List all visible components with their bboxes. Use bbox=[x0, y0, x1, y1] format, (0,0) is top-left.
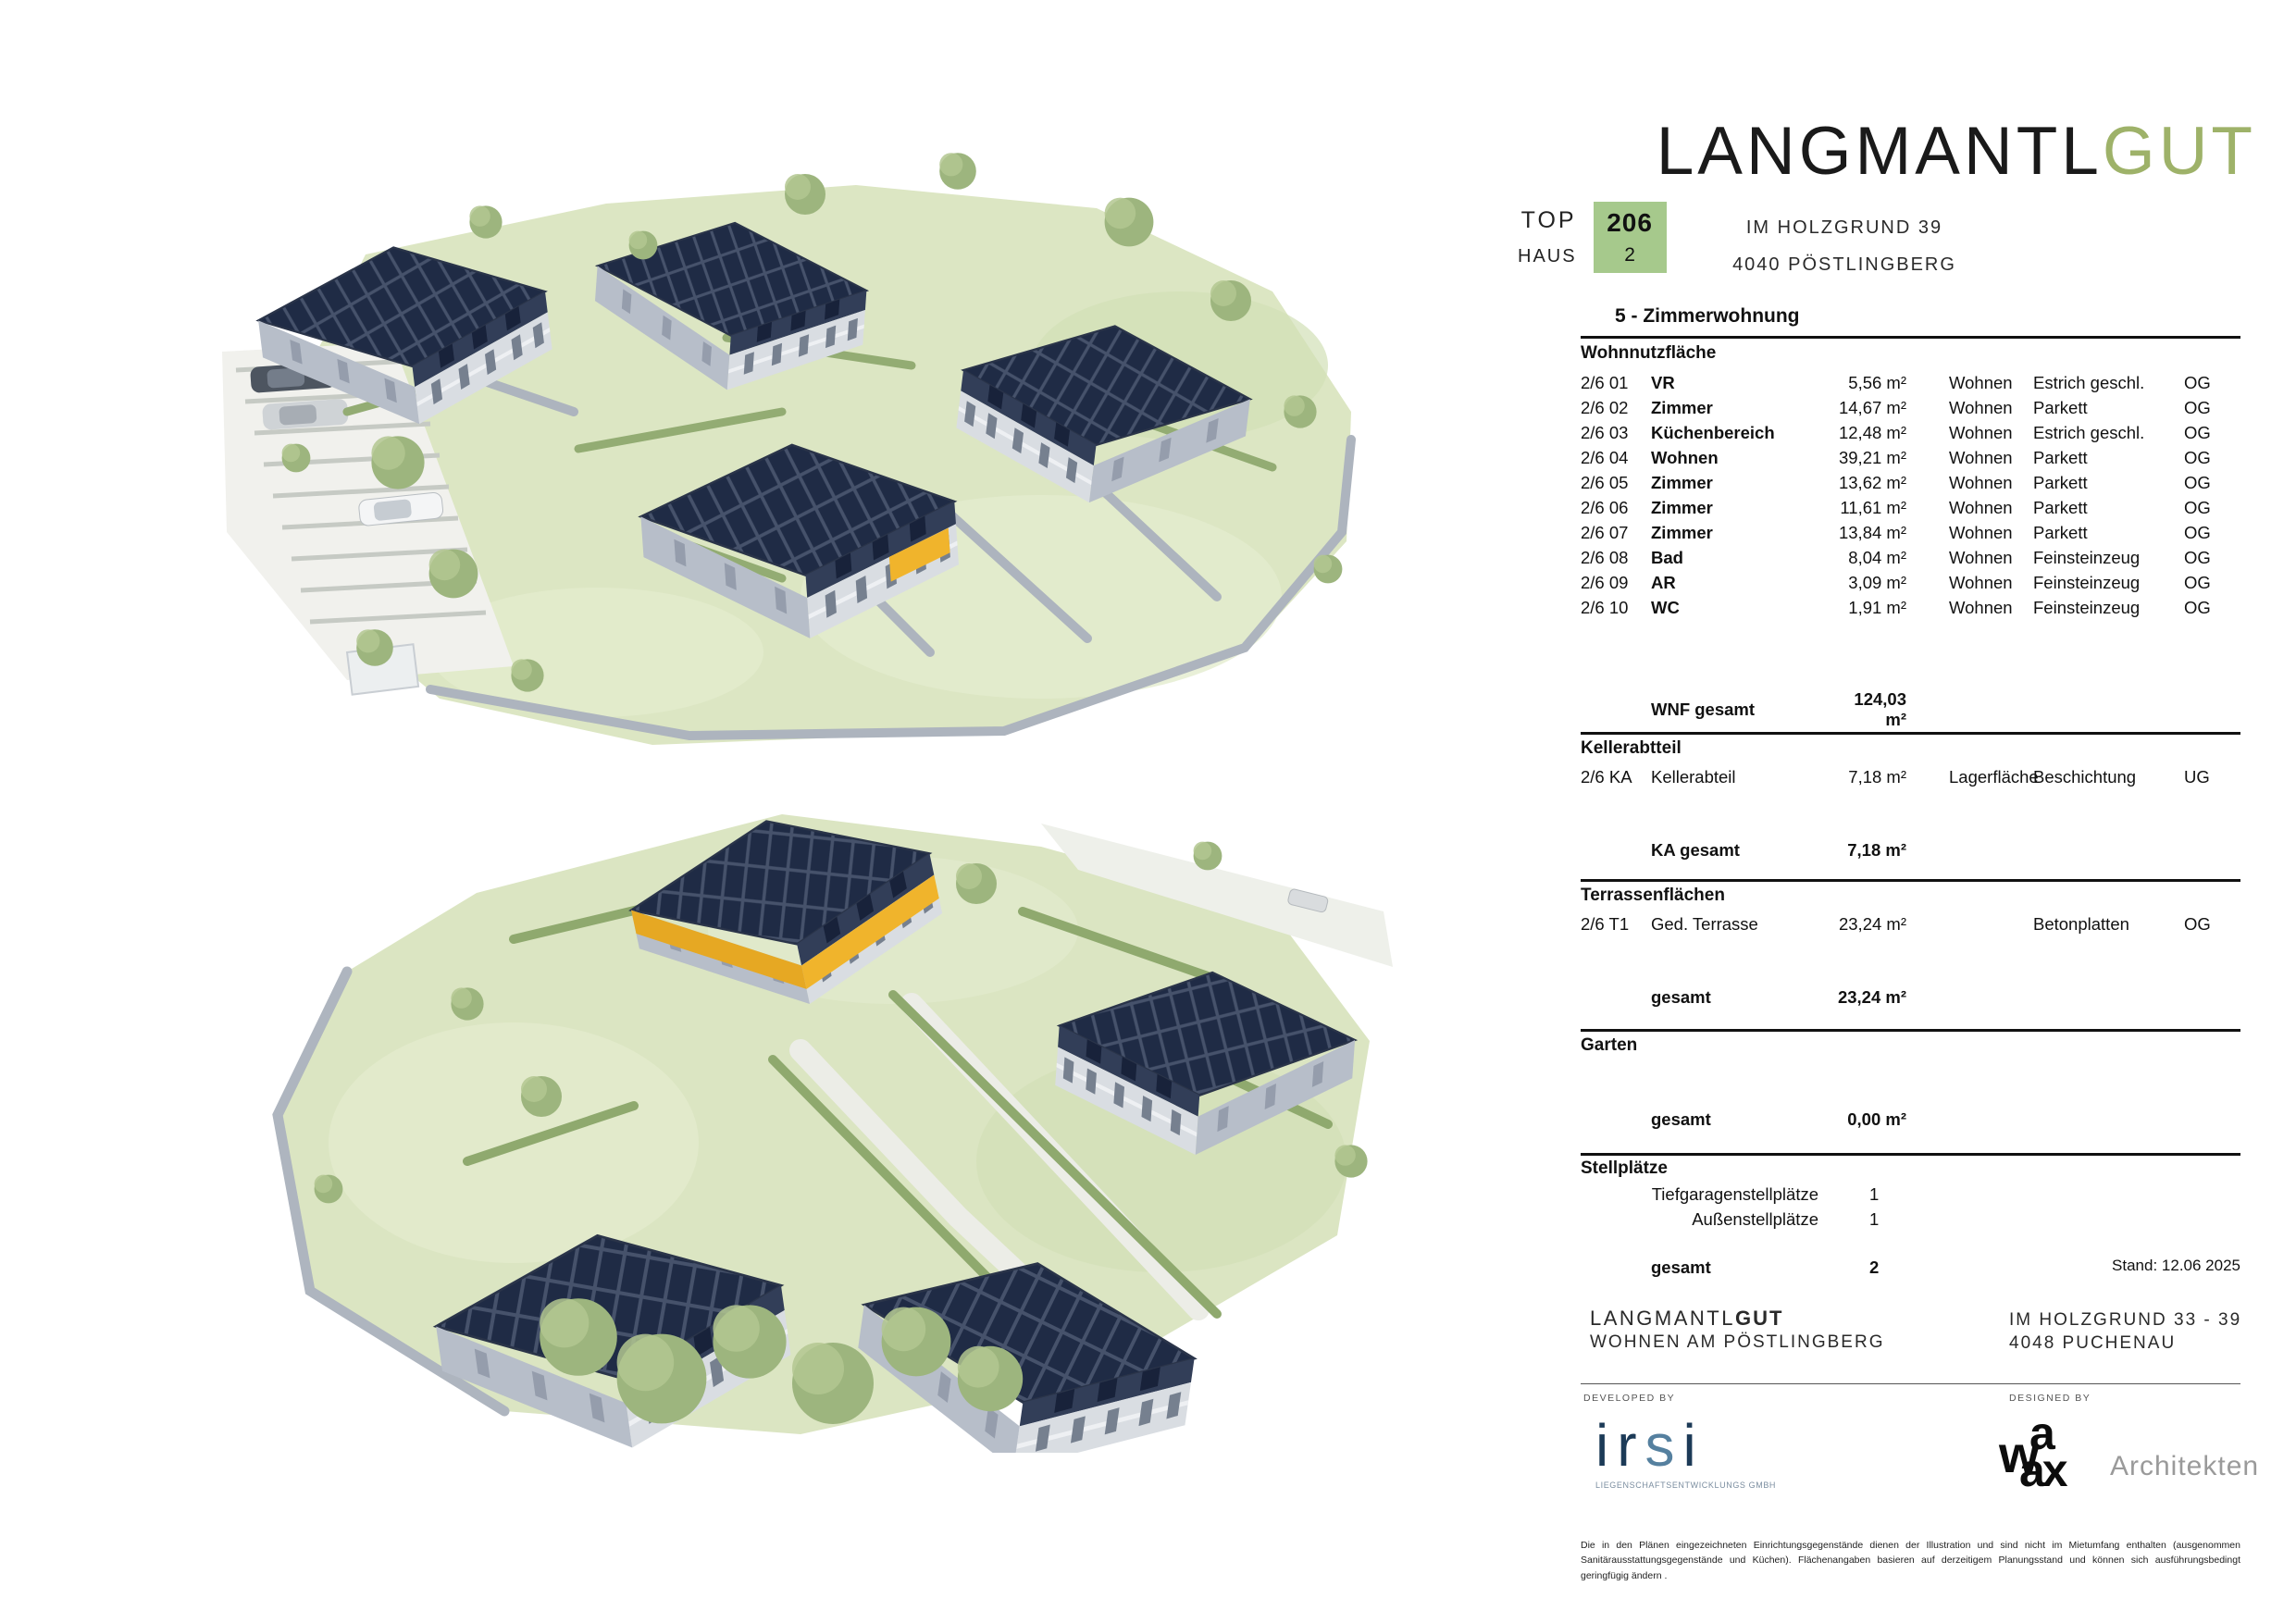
footer-brand-bold: GUT bbox=[1735, 1307, 1783, 1330]
wnf-total-label: WNF gesamt bbox=[1651, 700, 1836, 720]
designed-by-label: DESIGNED BY bbox=[2009, 1393, 2091, 1404]
garten-total-row: gesamt 0,00 m² bbox=[1581, 1107, 2240, 1132]
col-floor: OG bbox=[2184, 573, 2240, 593]
stellplatz-label: Außenstellplätze bbox=[1581, 1209, 1818, 1230]
haus-label: HAUS bbox=[1518, 246, 1577, 267]
col-zone: Wohnen bbox=[1906, 548, 2033, 568]
col-name: Zimmer bbox=[1651, 398, 1836, 418]
col-area: 1,91 m² bbox=[1836, 598, 1906, 618]
col-nr: 2/6 01 bbox=[1581, 373, 1651, 393]
wnf-total-row: WNF gesamt 124,03 m² bbox=[1581, 689, 2240, 714]
col-zone: Wohnen bbox=[1906, 573, 2033, 593]
ka-total-value: 7,18 m² bbox=[1836, 840, 1906, 861]
info-panel: LANGMANTLGUT TOP HAUS 206 2 IM HOLZGRUND… bbox=[1581, 120, 2258, 1601]
col-finish: Estrich geschl. bbox=[2033, 423, 2184, 443]
col-area: 3,09 m² bbox=[1836, 573, 1906, 593]
irsi-sub-label: LIEGENSCHAFTSENTWICKLUNGS GMBH bbox=[1595, 1481, 1799, 1490]
table-row: 2/6 02 Zimmer 14,67 m² Wohnen Parkett OG bbox=[1581, 395, 2240, 420]
col-zone: Wohnen bbox=[1906, 498, 2033, 518]
footer-brand-normal: LANGMANTL bbox=[1590, 1307, 1735, 1330]
project-address: IM HOLZGRUND 39 4040 PÖSTLINGBERG bbox=[1692, 209, 1997, 283]
stellplatz-label: Tiefgaragenstellplätze bbox=[1581, 1184, 1818, 1205]
section-header-terrassen: Terrassenflächen bbox=[1581, 886, 1725, 906]
address-line-1: IM HOLZGRUND 39 bbox=[1692, 209, 1997, 246]
col-nr: 2/6 07 bbox=[1581, 523, 1651, 543]
col-nr: 2/6 02 bbox=[1581, 398, 1651, 418]
col-zone: Wohnen bbox=[1906, 598, 2033, 618]
col-finish: Beschichtung bbox=[2033, 767, 2184, 787]
table-row: 2/6 03 Küchenbereich 12,48 m² Wohnen Est… bbox=[1581, 420, 2240, 445]
site-rendering-bottom bbox=[190, 773, 1402, 1453]
col-floor: OG bbox=[2184, 473, 2240, 493]
col-name: Küchenbereich bbox=[1651, 423, 1836, 443]
disclaimer-text: Die in den Plänen eingezeichneten Einric… bbox=[1581, 1538, 2240, 1583]
col-nr: 2/6 T1 bbox=[1581, 914, 1651, 935]
col-zone: Wohnen bbox=[1906, 473, 2033, 493]
section-header-stellplaetze: Stellplätze bbox=[1581, 1158, 1668, 1179]
col-finish: Feinsteinzeug bbox=[2033, 548, 2184, 568]
table-row: 2/6 01 VR 5,56 m² Wohnen Estrich geschl.… bbox=[1581, 370, 2240, 395]
waax-ax: ax bbox=[2019, 1447, 2066, 1493]
col-nr: 2/6 KA bbox=[1581, 767, 1651, 787]
brand-logo-green: GUT bbox=[2103, 114, 2256, 189]
section-header-garten: Garten bbox=[1581, 1035, 1637, 1056]
datasheet-page: LANGMANTLGUT TOP HAUS 206 2 IM HOLZGRUND… bbox=[0, 0, 2296, 1623]
col-name: WC bbox=[1651, 598, 1836, 618]
col-name: Zimmer bbox=[1651, 473, 1836, 493]
col-name: Kellerabteil bbox=[1651, 767, 1836, 787]
waax-logo: w a ax Architekten bbox=[1999, 1414, 2240, 1506]
table-row: 2/6 04 Wohnen 39,21 m² Wohnen Parkett OG bbox=[1581, 445, 2240, 470]
brand-logo: LANGMANTLGUT bbox=[1657, 113, 2256, 190]
unit-number-box: 206 2 bbox=[1594, 202, 1667, 273]
footer-brand-sub: WOHNEN AM PÖSTLINGBERG bbox=[1590, 1331, 1884, 1355]
col-nr: 2/6 08 bbox=[1581, 548, 1651, 568]
col-floor: OG bbox=[2184, 498, 2240, 518]
address-line-2: 4040 PÖSTLINGBERG bbox=[1692, 246, 1997, 283]
col-floor: OG bbox=[2184, 448, 2240, 468]
section-header-wohnnutzflaeche: Wohnnutzfläche bbox=[1581, 343, 1716, 364]
wohnnutzflaeche-rows: 2/6 01 VR 5,56 m² Wohnen Estrich geschl.… bbox=[1581, 370, 2240, 620]
ka-total-row: KA gesamt 7,18 m² bbox=[1581, 837, 2240, 862]
site-rendering-top bbox=[208, 134, 1393, 754]
col-floor: OG bbox=[2184, 398, 2240, 418]
footer-address-line-2: 4048 PUCHENAU bbox=[2009, 1332, 2241, 1355]
col-zone: Lagerfläche bbox=[1906, 767, 2033, 787]
terrassen-total-label: gesamt bbox=[1651, 987, 1836, 1008]
col-finish: Parkett bbox=[2033, 398, 2184, 418]
ka-total-label: KA gesamt bbox=[1651, 840, 1836, 861]
waax-architekten-label: Architekten bbox=[2110, 1453, 2259, 1481]
stellplatz-value: 1 bbox=[1818, 1184, 2240, 1205]
footer-separator-line bbox=[1581, 1383, 2240, 1384]
footer-brand: LANGMANTLGUT WOHNEN AM PÖSTLINGBERG bbox=[1590, 1307, 1884, 1355]
col-name: Zimmer bbox=[1651, 523, 1836, 543]
unit-identifier: TOP HAUS 206 2 bbox=[1518, 202, 1667, 273]
top-label: TOP bbox=[1521, 207, 1577, 234]
col-area: 13,62 m² bbox=[1836, 473, 1906, 493]
table-row: 2/6 T1 Ged. Terrasse 23,24 m² Betonplatt… bbox=[1581, 911, 2240, 936]
top-value: 206 bbox=[1607, 208, 1653, 238]
col-name: Ged. Terrasse bbox=[1651, 914, 1836, 935]
separator-line bbox=[1581, 1153, 2240, 1156]
col-floor: OG bbox=[2184, 598, 2240, 618]
col-area: 5,56 m² bbox=[1836, 373, 1906, 393]
col-floor: OG bbox=[2184, 548, 2240, 568]
col-floor: OG bbox=[2184, 373, 2240, 393]
col-name: VR bbox=[1651, 373, 1836, 393]
developed-by-label: DEVELOPED BY bbox=[1583, 1393, 1675, 1404]
col-area: 11,61 m² bbox=[1836, 498, 1906, 518]
table-row: 2/6 KA Kellerabteil 7,18 m² Lagerfläche … bbox=[1581, 764, 2240, 789]
col-name: Wohnen bbox=[1651, 448, 1836, 468]
col-area: 39,21 m² bbox=[1836, 448, 1906, 468]
col-floor: UG bbox=[2184, 767, 2240, 787]
footer-address-line-1: IM HOLZGRUND 33 - 39 bbox=[2009, 1308, 2241, 1332]
garten-total-value: 0,00 m² bbox=[1836, 1109, 1906, 1130]
haus-value: 2 bbox=[1624, 244, 1635, 266]
separator-line bbox=[1581, 879, 2240, 882]
col-finish: Parkett bbox=[2033, 498, 2184, 518]
section-header-kellerabteil: Kellerabtteil bbox=[1581, 738, 1682, 759]
col-name: AR bbox=[1651, 573, 1836, 593]
stellplaetze-rows: Tiefgaragenstellplätze 1 Außenstellplätz… bbox=[1581, 1182, 2240, 1232]
irsi-logo: irsi LIEGENSCHAFTSENTWICKLUNGS GMBH bbox=[1595, 1416, 1799, 1490]
col-nr: 2/6 04 bbox=[1581, 448, 1651, 468]
col-finish: Betonplatten bbox=[2033, 914, 2184, 935]
separator-line bbox=[1581, 732, 2240, 735]
col-nr: 2/6 10 bbox=[1581, 598, 1651, 618]
col-area: 14,67 m² bbox=[1836, 398, 1906, 418]
stellplatz-value: 1 bbox=[1818, 1209, 2240, 1230]
col-finish: Estrich geschl. bbox=[2033, 373, 2184, 393]
wnf-total-value: 124,03 m² bbox=[1836, 689, 1906, 730]
brand-logo-black: LANGMANTL bbox=[1657, 114, 2103, 189]
table-row: 2/6 05 Zimmer 13,62 m² Wohnen Parkett OG bbox=[1581, 470, 2240, 495]
stellplaetze-total-row: gesamt 2 Stand: 12.06 2025 bbox=[1581, 1255, 2240, 1280]
col-finish: Parkett bbox=[2033, 523, 2184, 543]
col-area: 13,84 m² bbox=[1836, 523, 1906, 543]
terrassen-total-row: gesamt 23,24 m² bbox=[1581, 985, 2240, 1010]
separator-line bbox=[1581, 1029, 2240, 1032]
apartment-type-title: 5 - Zimmerwohnung bbox=[1615, 305, 1800, 328]
col-name: Zimmer bbox=[1651, 498, 1836, 518]
table-row: 2/6 10 WC 1,91 m² Wohnen Feinsteinzeug O… bbox=[1581, 595, 2240, 620]
stellplaetze-total-label: gesamt bbox=[1581, 1258, 1818, 1278]
col-finish: Feinsteinzeug bbox=[2033, 573, 2184, 593]
kellerabteil-rows: 2/6 KA Kellerabteil 7,18 m² Lagerfläche … bbox=[1581, 764, 2240, 789]
col-zone: Wohnen bbox=[1906, 373, 2033, 393]
separator-line bbox=[1581, 336, 2240, 339]
col-nr: 2/6 06 bbox=[1581, 498, 1651, 518]
table-row: 2/6 08 Bad 8,04 m² Wohnen Feinsteinzeug … bbox=[1581, 545, 2240, 570]
stand-date: Stand: 12.06 2025 bbox=[2112, 1257, 2240, 1275]
footer-address: IM HOLZGRUND 33 - 39 4048 PUCHENAU bbox=[2009, 1308, 2241, 1355]
col-nr: 2/6 05 bbox=[1581, 473, 1651, 493]
col-nr: 2/6 09 bbox=[1581, 573, 1651, 593]
col-floor: OG bbox=[2184, 423, 2240, 443]
col-area: 12,48 m² bbox=[1836, 423, 1906, 443]
stellplatz-row: Außenstellplätze 1 bbox=[1581, 1207, 2240, 1232]
col-nr: 2/6 03 bbox=[1581, 423, 1651, 443]
table-row: 2/6 09 AR 3,09 m² Wohnen Feinsteinzeug O… bbox=[1581, 570, 2240, 595]
col-area: 23,24 m² bbox=[1836, 914, 1906, 935]
col-zone: Wohnen bbox=[1906, 423, 2033, 443]
col-zone: Wohnen bbox=[1906, 448, 2033, 468]
terrassen-total-value: 23,24 m² bbox=[1836, 987, 1906, 1008]
garten-total-label: gesamt bbox=[1651, 1109, 1836, 1130]
col-area: 8,04 m² bbox=[1836, 548, 1906, 568]
col-zone: Wohnen bbox=[1906, 523, 2033, 543]
col-area: 7,18 m² bbox=[1836, 767, 1906, 787]
table-row: 2/6 07 Zimmer 13,84 m² Wohnen Parkett OG bbox=[1581, 520, 2240, 545]
col-zone: Wohnen bbox=[1906, 398, 2033, 418]
col-finish: Feinsteinzeug bbox=[2033, 598, 2184, 618]
terrassen-rows: 2/6 T1 Ged. Terrasse 23,24 m² Betonplatt… bbox=[1581, 911, 2240, 936]
col-finish: Parkett bbox=[2033, 473, 2184, 493]
col-finish: Parkett bbox=[2033, 448, 2184, 468]
col-name: Bad bbox=[1651, 548, 1836, 568]
stellplatz-row: Tiefgaragenstellplätze 1 bbox=[1581, 1182, 2240, 1207]
col-floor: OG bbox=[2184, 523, 2240, 543]
col-floor: OG bbox=[2184, 914, 2240, 935]
table-row: 2/6 06 Zimmer 11,61 m² Wohnen Parkett OG bbox=[1581, 495, 2240, 520]
